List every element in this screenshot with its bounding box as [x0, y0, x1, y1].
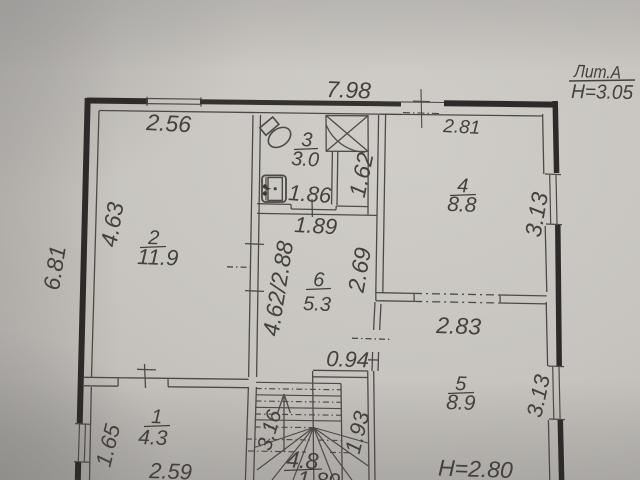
svg-text:1.89: 1.89	[297, 466, 341, 480]
svg-text:6: 6	[313, 269, 326, 291]
svg-text:7.98: 7.98	[326, 76, 372, 104]
svg-text:Н=3.05: Н=3.05	[571, 81, 634, 104]
svg-text:1.86: 1.86	[288, 180, 333, 208]
svg-text:Н=2.80: Н=2.80	[438, 454, 514, 480]
svg-text:2.81: 2.81	[442, 116, 481, 139]
svg-text:8.8: 8.8	[447, 193, 477, 217]
svg-text:2.56: 2.56	[145, 109, 192, 137]
svg-text:5.3: 5.3	[303, 293, 332, 316]
svg-text:1.89: 1.89	[294, 212, 338, 239]
svg-text:2.59: 2.59	[148, 458, 193, 480]
svg-text:1: 1	[151, 406, 163, 428]
svg-text:2.83: 2.83	[435, 312, 482, 340]
svg-text:8.9: 8.9	[446, 391, 476, 415]
svg-text:3.0: 3.0	[291, 148, 320, 171]
svg-text:Лит.А: Лит.А	[573, 61, 622, 83]
svg-text:4.3: 4.3	[138, 426, 168, 450]
svg-text:11.9: 11.9	[137, 244, 179, 270]
svg-text:0.94: 0.94	[326, 346, 370, 372]
